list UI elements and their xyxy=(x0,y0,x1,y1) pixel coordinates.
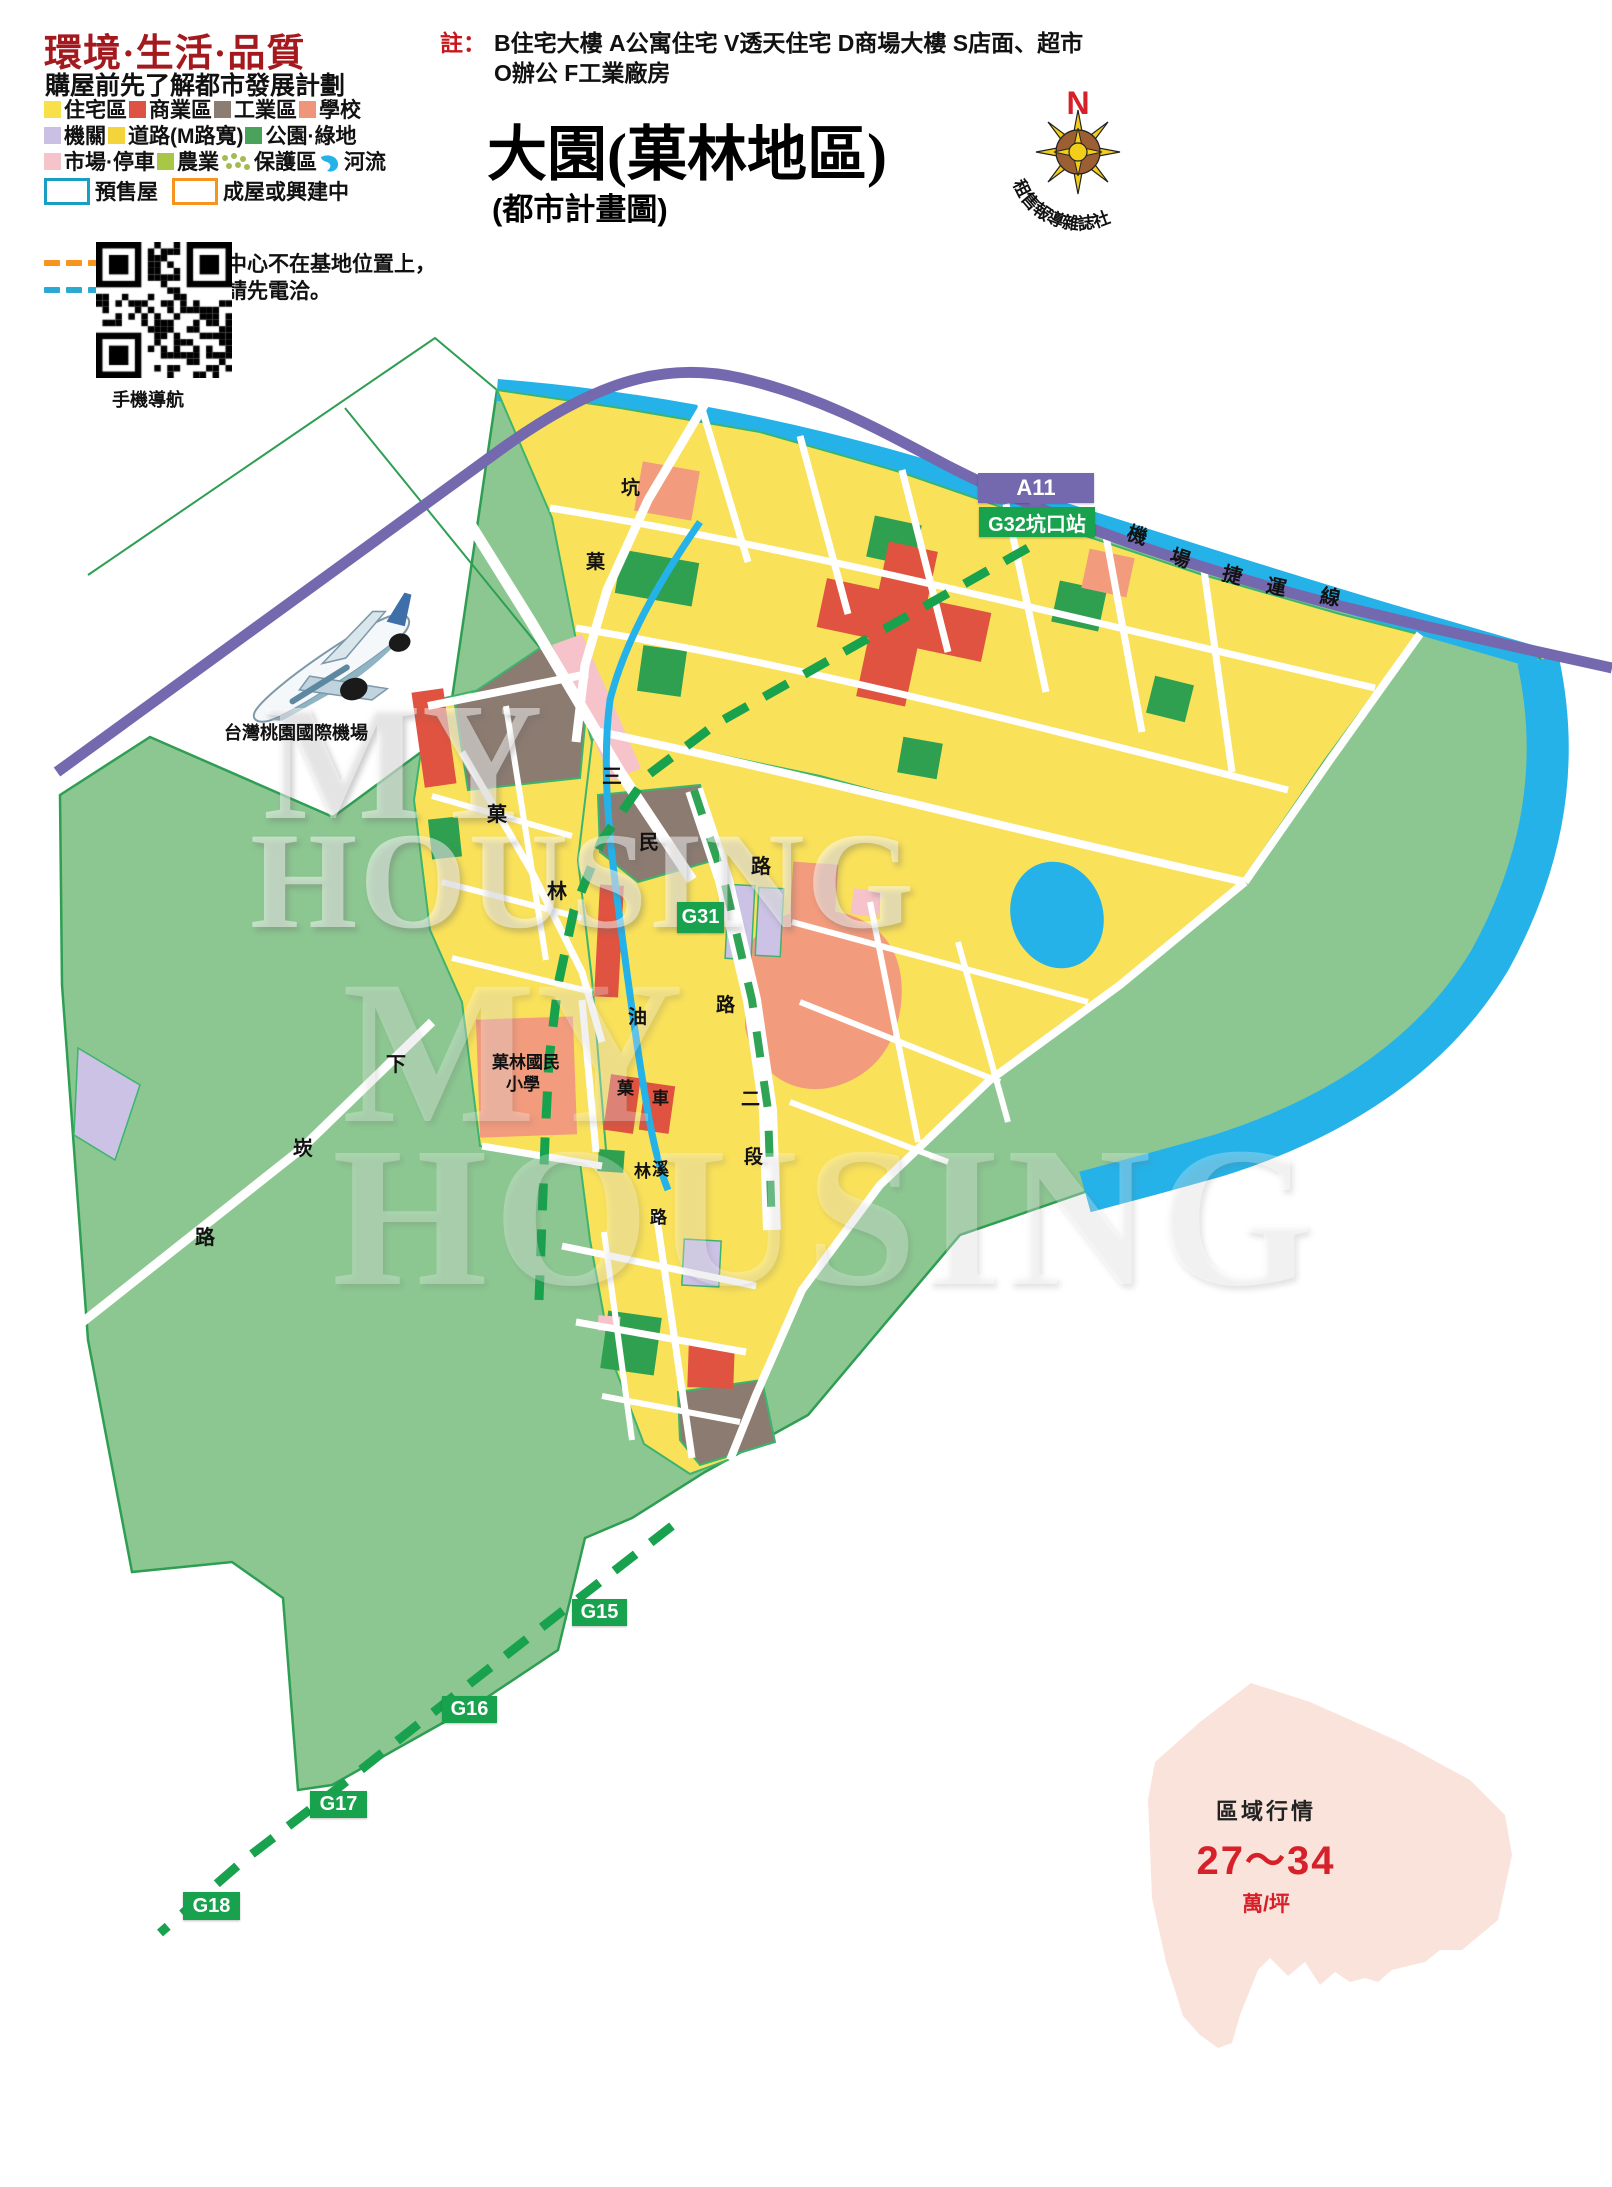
legend-item: 市場·停車 xyxy=(44,146,155,176)
legend-label: 市場·停車 xyxy=(64,146,155,176)
street-label: 場 xyxy=(1167,546,1192,571)
legend-row-2: 機關道路(M路寬)公園·綠地 xyxy=(44,122,388,148)
legend-label: 農業 xyxy=(177,146,219,176)
annotation-note: 註： B住宅大樓 A公寓住宅 V透天住宅 D商場大樓 S店面、超市 O辦公 F工… xyxy=(440,28,1083,88)
street-label: 菓林國民 xyxy=(492,1054,560,1071)
legend-swatch xyxy=(299,101,316,118)
legend-swatch xyxy=(157,153,174,170)
legend-status-row: 預售屋成屋或興建中 xyxy=(44,176,388,206)
street-label: 車 xyxy=(652,1090,669,1107)
legend-row-3: 市場·停車農業保護區河流 xyxy=(44,148,388,174)
station-badge-A11: A11 xyxy=(978,473,1094,503)
station-badge-G31: G31 xyxy=(677,902,724,933)
station-badge-G18: G18 xyxy=(183,1892,240,1920)
river-icon xyxy=(319,153,341,170)
legend-row-1: 住宅區商業區工業區學校 xyxy=(44,96,388,122)
legend-swatch xyxy=(44,127,61,144)
street-label: 台灣桃園國際機場 xyxy=(224,724,368,742)
street-label: 三 xyxy=(602,767,622,787)
street-label: 溪 xyxy=(652,1161,669,1178)
qr-code xyxy=(96,242,232,378)
street-label: 機 xyxy=(1124,523,1149,548)
legend-swatch xyxy=(44,153,61,170)
price-title: 區域行情 xyxy=(1156,1794,1376,1826)
station-badge-G16: G16 xyxy=(442,1696,497,1723)
legend-status-label: 預售屋 xyxy=(95,176,158,206)
street-label: 下 xyxy=(386,1055,406,1075)
price-range: 27～34 xyxy=(1156,1828,1376,1886)
street-label: 路 xyxy=(650,1209,667,1226)
street-label: 林 xyxy=(634,1163,651,1180)
legend-status-box xyxy=(172,178,218,205)
street-label: 坑 xyxy=(621,479,640,498)
price-unit: 萬/坪 xyxy=(1156,1888,1376,1918)
legend-item: 河流 xyxy=(319,146,386,176)
street-label: 路 xyxy=(716,996,735,1015)
street-label: 線 xyxy=(1318,586,1341,609)
qr-caption: 手機導航 xyxy=(112,386,184,412)
legend-label: 保護區 xyxy=(254,146,317,176)
annotation-lines: B住宅大樓 A公寓住宅 V透天住宅 D商場大樓 S店面、超市 O辦公 F工業廠房 xyxy=(494,28,1083,88)
street-label: 油 xyxy=(628,1008,647,1027)
map-title-note: (都市計畫圖) xyxy=(492,184,668,229)
street-label: 運 xyxy=(1264,576,1288,600)
street-label: 民 xyxy=(639,833,659,853)
street-label: 菓 xyxy=(617,1080,634,1097)
legend-item: 農業 xyxy=(157,146,219,176)
station-badge-G15: G15 xyxy=(572,1599,627,1626)
street-label: 菓 xyxy=(487,805,507,825)
street-label: 捷 xyxy=(1220,564,1244,588)
annotation-prefix: 註： xyxy=(440,28,486,88)
station-badge-G17: G17 xyxy=(310,1791,367,1818)
street-label: 崁 xyxy=(293,1139,313,1159)
legend-status-box xyxy=(44,178,90,205)
legend-label: 河流 xyxy=(344,146,386,176)
map-title: 大園(菓林地區) xyxy=(487,106,887,193)
street-label: 小學 xyxy=(506,1076,540,1093)
legend-swatch xyxy=(108,127,125,144)
price-panel: 區域行情 27～34 萬/坪 xyxy=(1156,1794,1376,1918)
legend-swatch xyxy=(44,101,61,118)
street-label: 二 xyxy=(741,1090,760,1109)
street-label: 林 xyxy=(547,882,567,902)
legend: 住宅區商業區工業區學校機關道路(M路寬)公園·綠地市場·停車農業保護區河流預售屋… xyxy=(44,96,388,206)
street-label: 菓 xyxy=(586,553,605,572)
legend-status-label: 成屋或興建中 xyxy=(223,176,349,206)
street-label: 路 xyxy=(195,1228,215,1248)
annotation-line2: O辦公 F工業廠房 xyxy=(494,60,670,86)
protected-area-dots-icon xyxy=(221,153,251,170)
street-label: 路 xyxy=(751,857,771,877)
station-badge-G32坑口站: G32坑口站 xyxy=(979,507,1095,537)
annotation-line1: B住宅大樓 A公寓住宅 V透天住宅 D商場大樓 S店面、超市 xyxy=(494,30,1083,56)
legend-item: 保護區 xyxy=(221,146,317,176)
legend-swatch xyxy=(129,101,146,118)
street-label: 段 xyxy=(744,1148,763,1167)
legend-swatch xyxy=(245,127,262,144)
legend-swatch xyxy=(214,101,231,118)
page: N xyxy=(0,0,1612,2187)
